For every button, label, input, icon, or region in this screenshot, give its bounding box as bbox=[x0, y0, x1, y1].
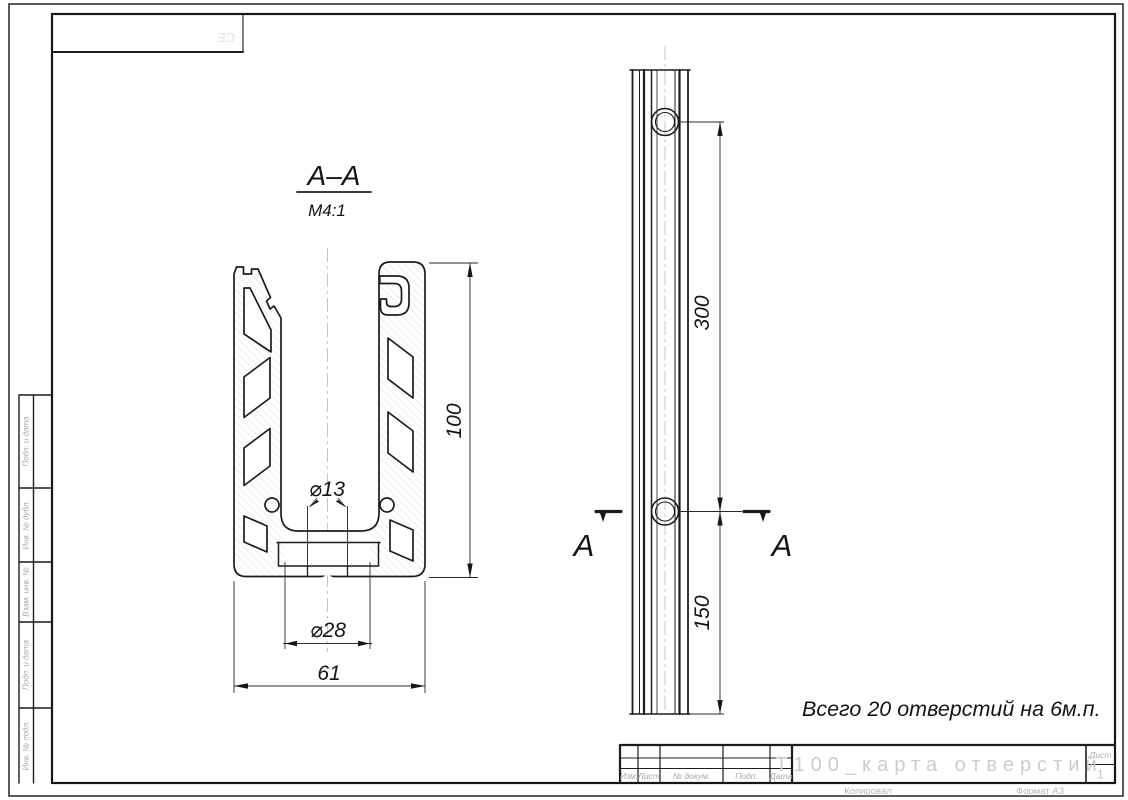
profile-section-outline bbox=[234, 262, 425, 577]
tb-col-izm: Изм. bbox=[620, 771, 638, 781]
section-title: A–A bbox=[306, 160, 361, 191]
dim-counterbore-label: ⌀28 bbox=[310, 619, 346, 642]
sheet-frame: СЕ Подп. и дата Инв. № дубл. Взам. инв. … bbox=[9, 4, 1123, 796]
margin-label-1: Подп. и дата bbox=[22, 416, 31, 467]
footer-format: Формат А3 bbox=[1016, 786, 1064, 797]
section-cut-marks: A A bbox=[572, 512, 793, 564]
dim-height-label: 100 bbox=[443, 403, 466, 438]
drawing-canvas: СЕ Подп. и дата Инв. № дубл. Взам. инв. … bbox=[0, 0, 1128, 800]
corner-stamp-cell: СЕ bbox=[52, 14, 243, 52]
margin-label-4: Подп. и дата bbox=[22, 639, 31, 690]
dim-hole-label: ⌀13 bbox=[309, 478, 345, 501]
left-margin-column: Подп. и дата Инв. № дубл. Взам. инв. № П… bbox=[19, 395, 52, 783]
title-block: Изм. Лист № докум. Подп. Дата T100_карта… bbox=[620, 745, 1115, 797]
cut-letter-right: A bbox=[770, 528, 793, 563]
drawing-sheet: СЕ Подп. и дата Инв. № дубл. Взам. инв. … bbox=[0, 0, 1128, 800]
inner-border bbox=[52, 14, 1115, 783]
profile-side-lines bbox=[630, 70, 690, 714]
dim-spacing-300: 300 bbox=[680, 122, 742, 512]
dim-end-150: 150 bbox=[690, 512, 724, 715]
tb-col-podp: Подп. bbox=[735, 771, 758, 781]
note-text: Всего 20 отверстий на 6м.п. bbox=[802, 697, 1101, 721]
section-scale: M4:1 bbox=[308, 201, 346, 220]
side-view: 300 150 A A bbox=[572, 46, 793, 714]
bore-clear-area bbox=[284, 533, 370, 576]
outer-border bbox=[9, 4, 1123, 796]
hole-bottom bbox=[652, 498, 679, 525]
doc-title: T100_карта отверстий bbox=[775, 754, 1102, 776]
dim-end-label: 150 bbox=[691, 595, 714, 630]
footer-copied: Копировал bbox=[844, 786, 892, 797]
dim-width-label: 61 bbox=[317, 662, 340, 685]
corner-stamp-text: СЕ bbox=[217, 30, 235, 45]
dim-height-100: 100 bbox=[429, 263, 478, 578]
tb-col-docnum: № докум. bbox=[673, 771, 710, 781]
margin-label-5: Инв. № подл. bbox=[22, 721, 31, 771]
dim-spacing-label: 300 bbox=[691, 295, 714, 330]
margin-label-3: Взам. инв. № bbox=[22, 567, 31, 617]
tb-col-list: Лист bbox=[637, 771, 660, 781]
cut-letter-left: A bbox=[572, 528, 595, 563]
section-view: A–A M4:1 100 ⌀13 bbox=[234, 160, 478, 693]
sheet-label: Лист bbox=[1089, 750, 1112, 760]
sheet-number: 1 bbox=[1097, 768, 1104, 782]
margin-label-2: Инв. № дубл. bbox=[22, 500, 31, 549]
